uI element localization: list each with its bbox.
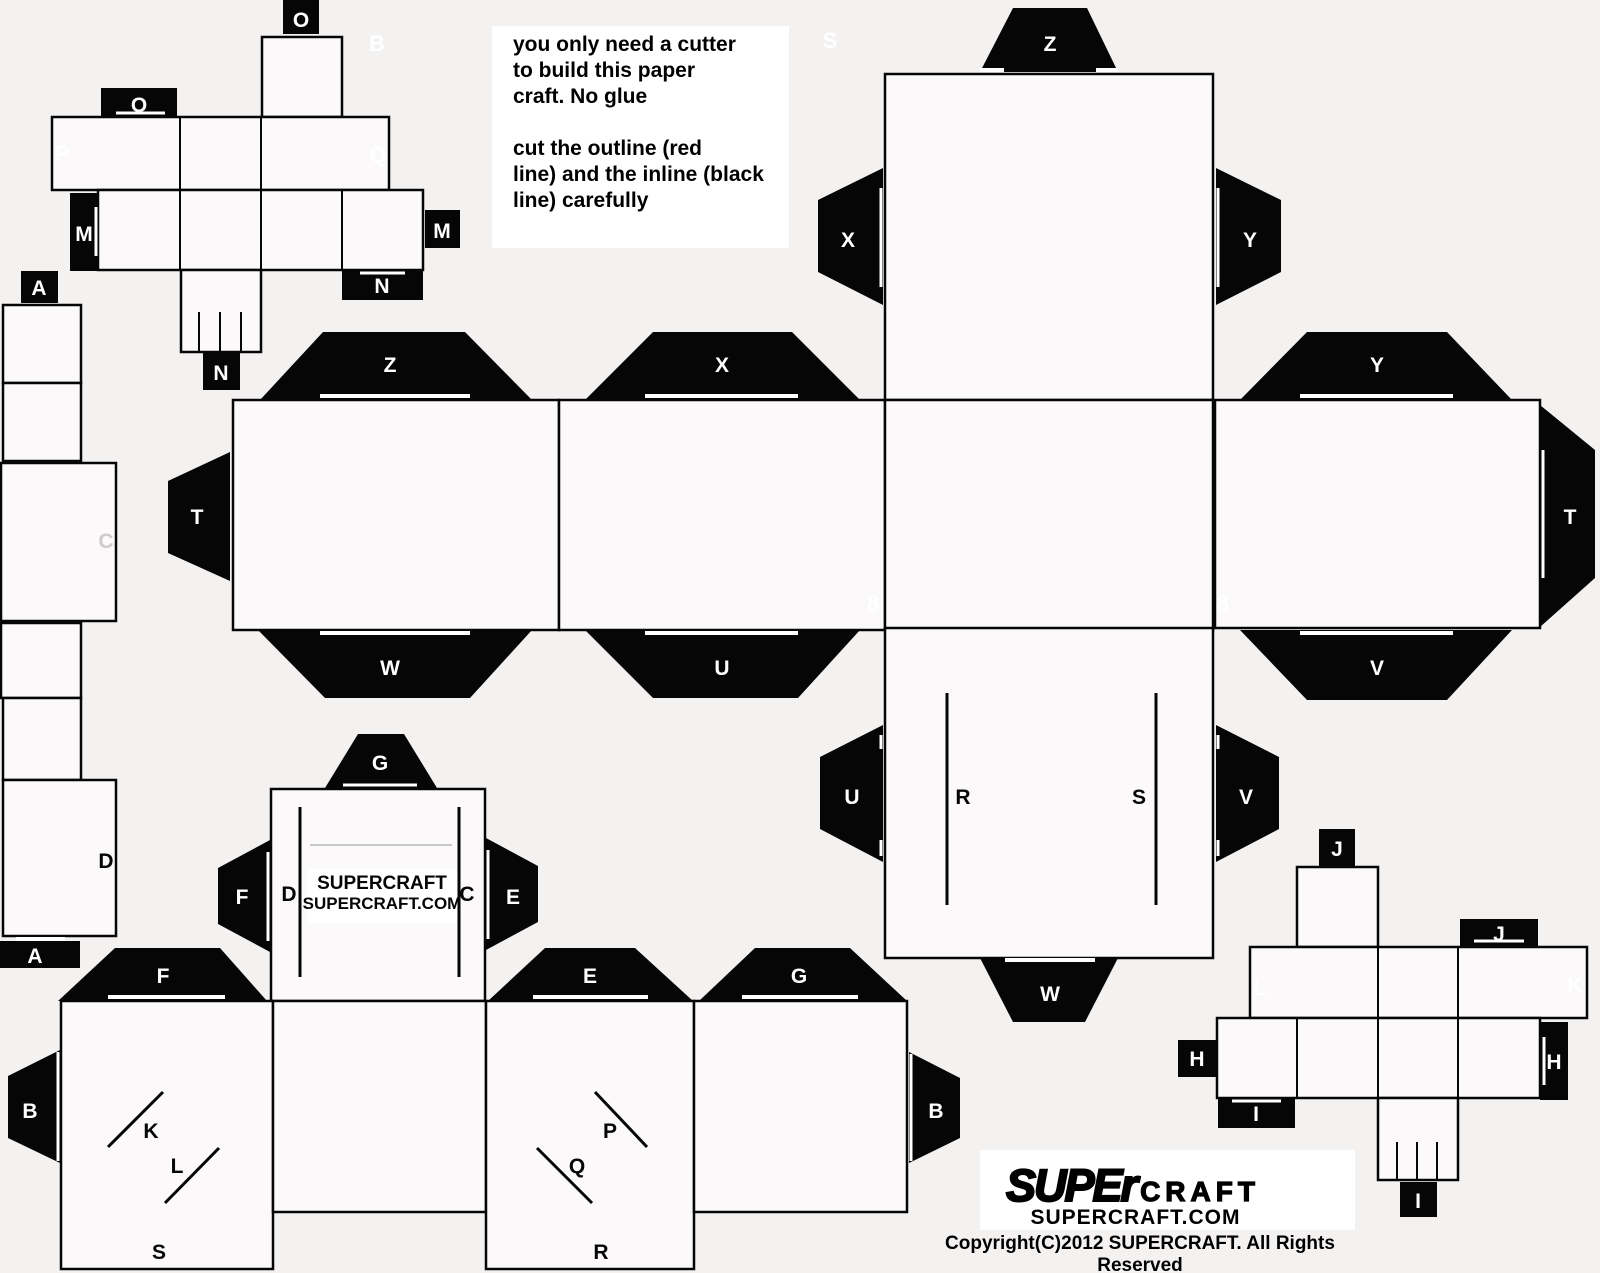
tab-f-head-label: F [236, 886, 249, 909]
mark-c-strip: C [98, 530, 113, 553]
logo-craft-text: CRAFT [1140, 1176, 1260, 1207]
copyright-text: Copyright(C)2012 SUPERCRAFT. All Rights … [900, 1233, 1380, 1273]
tab-u-cube-label: U [844, 786, 859, 809]
tab-f-body-label: F [157, 965, 170, 988]
tab-v-cube-label: V [1239, 786, 1253, 809]
head-brand-text: SUPERCRAFT [317, 873, 447, 894]
papercraft-template-sheet: OOMMNNAAJJHHIIZXWUTZXYUVWYVTGFEFEGBBSUPE… [0, 0, 1600, 1273]
tab-e-head-label: E [506, 886, 520, 909]
faint-mark-l: L [1253, 975, 1266, 1000]
left-strip-rect3 [1, 623, 81, 698]
tl-template-head-face [262, 37, 342, 117]
mark-c-head: C [459, 883, 474, 906]
tab-v-right-strip-label: V [1370, 657, 1384, 680]
tab-g-body-label: G [791, 965, 807, 988]
logo-domain: SUPERCRAFT.COM [1003, 1206, 1268, 1230]
faint-mark-k: K [1567, 973, 1583, 998]
tab-n-small-label: N [213, 362, 228, 385]
tab-t-band-label: T [191, 506, 204, 529]
tab-b-right-label: B [928, 1100, 943, 1123]
mark-p: P [603, 1120, 617, 1143]
faint-mark-s: S [823, 28, 838, 53]
tab-j-wide-label: J [1493, 923, 1505, 946]
tab-a-bottom-label: A [27, 945, 42, 968]
tab-i-small-label: I [1415, 1190, 1421, 1213]
tl-template-row1-face [52, 117, 389, 190]
faint-mark-b: B [369, 31, 385, 56]
tab-y-cube-label: Y [1243, 229, 1257, 252]
template-drawing: OOMMNNAAJJHHIIZXWUTZXYUVWYVTGFEFEGBBSUPE… [0, 0, 1600, 1273]
mark-d-strip: D [98, 850, 113, 873]
mark-d-head: D [281, 883, 296, 906]
tab-x-cube-label: X [841, 229, 855, 252]
mark-s-cube: S [1132, 786, 1146, 809]
faint-mark-8-right: 8 [1217, 591, 1229, 616]
small-template-midrow-face [1250, 947, 1587, 1018]
supercraft-logo: SUPErCRAFT [1006, 1160, 1366, 1212]
cube-top-face [885, 74, 1213, 400]
body-face-4 [694, 1001, 907, 1212]
tab-y-right-strip-label: Y [1370, 354, 1384, 377]
tab-a-top-label: A [31, 277, 46, 300]
tab-h-left-label: H [1189, 1048, 1204, 1071]
instructions-text: you only need a cutter to build this pap… [513, 32, 789, 214]
small-template-head-face [1297, 867, 1378, 947]
tab-n-wide-label: N [374, 275, 389, 298]
tab-m-left-label: M [75, 223, 93, 246]
head-brand-url: SUPERCRAFT.COM [303, 894, 462, 913]
mark-k: K [143, 1120, 158, 1143]
instructions-box: you only need a cutter to build this pap… [492, 26, 789, 248]
cube-middle-face [885, 400, 1213, 630]
tab-i-wide-label: I [1253, 1103, 1259, 1126]
cube-bottom-face [885, 628, 1213, 958]
tab-g-head-label: G [372, 752, 388, 775]
tab-b-left-label: B [22, 1100, 37, 1123]
faint-mark-8-left: 8 [867, 591, 879, 616]
band-face-1 [233, 400, 559, 630]
right-strip-face [1215, 400, 1540, 628]
band-face-2 [559, 400, 885, 630]
tab-w-band-label: W [380, 657, 400, 680]
tab-h-right-label: H [1546, 1051, 1561, 1074]
body-face-3 [486, 1001, 694, 1269]
logo-super-text: SUPEr [1006, 1160, 1136, 1211]
mark-q: Q [569, 1155, 585, 1178]
tab-t-right-strip-label: T [1564, 506, 1577, 529]
tab-x-band-label: X [715, 354, 729, 377]
mark-s-body: S [152, 1241, 166, 1264]
tab-z-cube-label: Z [1044, 33, 1057, 56]
body-face-2 [273, 1001, 486, 1212]
mark-r-body: R [593, 1241, 608, 1264]
left-strip-rect1 [3, 305, 81, 383]
tab-u-band-label: U [714, 657, 729, 680]
mark-l: L [171, 1155, 184, 1178]
faint-mark-p: P [55, 141, 70, 166]
tab-o-small-label: O [293, 9, 309, 32]
left-strip-rect2 [3, 383, 81, 461]
faint-mark-q: Q [369, 142, 386, 167]
left-strip-rect4 [3, 698, 81, 780]
mark-r-cube: R [955, 786, 970, 809]
tab-j-small-label: J [1331, 838, 1343, 861]
tab-m-right-label: M [433, 220, 451, 243]
tab-z-band-label: Z [384, 354, 397, 377]
tab-e-body-label: E [583, 965, 597, 988]
body-face-1 [61, 1001, 273, 1269]
tab-w-cube-label: W [1040, 983, 1060, 1006]
